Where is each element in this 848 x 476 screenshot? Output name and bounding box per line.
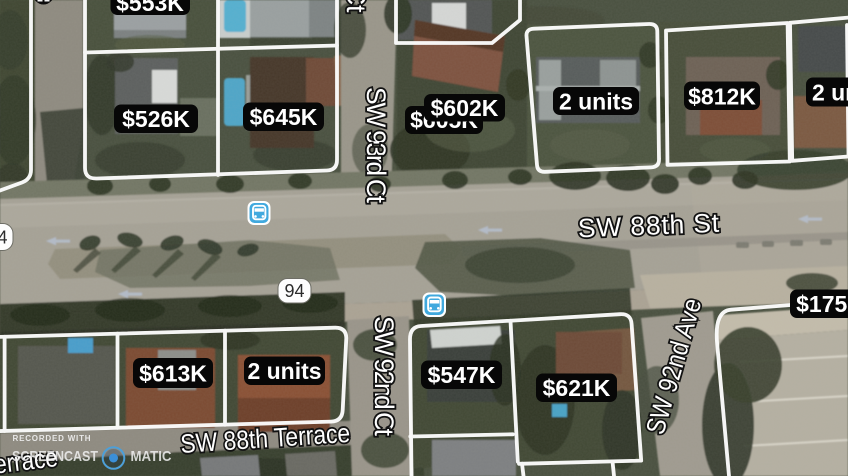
svg-text:RECORDED WITH: RECORDED WITH xyxy=(13,434,92,443)
svg-text:$547K: $547K xyxy=(428,362,496,388)
svg-text:$621K: $621K xyxy=(543,375,611,401)
svg-text:MATIC: MATIC xyxy=(131,448,172,465)
svg-text:SW 93rd Ct: SW 93rd Ct xyxy=(361,87,391,204)
svg-text:2 units: 2 units xyxy=(559,89,633,115)
svg-text:$526K: $526K xyxy=(122,106,190,132)
svg-text:$645K: $645K xyxy=(250,104,318,130)
svg-text:$812K: $812K xyxy=(688,84,756,110)
svg-text:$613K: $613K xyxy=(139,361,207,387)
svg-text:SW 88th St: SW 88th St xyxy=(577,208,720,244)
svg-text:Ct: Ct xyxy=(341,0,371,13)
svg-text:$175K: $175K xyxy=(796,291,848,317)
svg-text:SCREENCAST: SCREENCAST xyxy=(12,448,98,465)
svg-text:$553K: $553K xyxy=(116,0,184,16)
svg-text:$602K: $602K xyxy=(431,95,499,121)
svg-text:SW 92nd Ct: SW 92nd Ct xyxy=(369,316,399,437)
svg-text:2 units: 2 units xyxy=(812,80,848,106)
svg-text:94: 94 xyxy=(284,281,304,301)
svg-text:94: 94 xyxy=(0,228,8,248)
svg-text:2 units: 2 units xyxy=(247,358,321,384)
